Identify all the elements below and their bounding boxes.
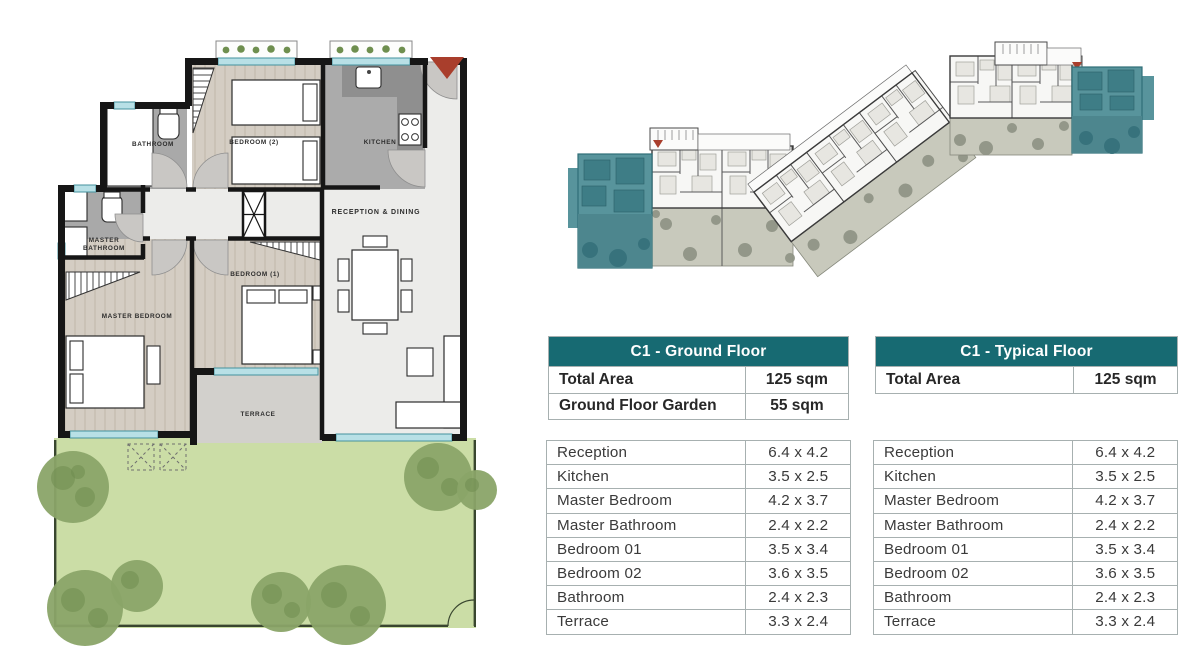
summary-value: 55 sqm [745, 394, 848, 420]
room-dimensions: 3.6 x 3.5 [745, 562, 850, 585]
room-label-master-bath-1: MASTER [89, 237, 120, 244]
floor-plan: BATHROOM BEDROOM (2) KITCHEN RECEPTION &… [0, 0, 540, 656]
room-name: Bedroom 01 [547, 538, 745, 561]
room-dimensions: 2.4 x 2.3 [745, 586, 850, 609]
terrace [195, 372, 322, 443]
room-dimensions: 6.4 x 4.2 [745, 441, 850, 464]
table-typical-floor-rooms: Reception6.4 x 4.2 Kitchen3.5 x 2.5 Mast… [873, 440, 1178, 635]
table-title-ground: C1 - Ground Floor [549, 337, 848, 366]
room-label-bedroom2: BEDROOM (2) [229, 139, 279, 146]
table-row: Total Area 125 sqm [549, 366, 848, 393]
planters [216, 41, 412, 58]
room-name: Reception [874, 441, 1072, 464]
keyplan-right-block [950, 42, 1154, 155]
stove-icon [399, 114, 421, 145]
room-name: Terrace [547, 610, 745, 633]
room-label-kitchen: KITCHEN [364, 139, 397, 146]
summary-value: 125 sqm [745, 367, 848, 393]
room-name: Terrace [874, 610, 1072, 633]
room-dimensions: 3.6 x 3.5 [1072, 562, 1177, 585]
table-row: Kitchen3.5 x 2.5 [547, 464, 850, 488]
room-dimensions: 2.4 x 2.2 [745, 514, 850, 537]
room-name: Master Bathroom [547, 514, 745, 537]
room-label-master-bath-2: BATHROOM [83, 245, 125, 252]
room-name: Reception [547, 441, 745, 464]
room-name: Kitchen [547, 465, 745, 488]
table-typical-floor-summary: C1 - Typical Floor Total Area 125 sqm [875, 336, 1178, 394]
room-dimensions: 3.5 x 2.5 [745, 465, 850, 488]
summary-label: Total Area [549, 367, 745, 393]
key-plan [560, 28, 1196, 278]
table-row: Total Area 125 sqm [876, 366, 1177, 393]
highlighted-unit-right [1072, 67, 1154, 154]
table-row: Master Bathroom2.4 x 2.2 [874, 513, 1177, 537]
room-name: Master Bathroom [874, 514, 1072, 537]
table-row: Terrace3.3 x 2.4 [874, 609, 1177, 633]
room-name: Master Bedroom [874, 489, 1072, 512]
page: { "colors": { "header_teal": "#176a72", … [0, 0, 1196, 656]
room-name: Bathroom [547, 586, 745, 609]
room-dimensions: 4.2 x 3.7 [745, 489, 850, 512]
table-row: Ground Floor Garden 55 sqm [549, 393, 848, 420]
table-row: Reception6.4 x 4.2 [547, 441, 850, 464]
table-row: Master Bathroom2.4 x 2.2 [547, 513, 850, 537]
table-row: Reception6.4 x 4.2 [874, 441, 1177, 464]
table-ground-floor-rooms: Reception6.4 x 4.2 Kitchen3.5 x 2.5 Mast… [546, 440, 851, 635]
summary-value: 125 sqm [1073, 367, 1177, 393]
table-ground-floor-summary: C1 - Ground Floor Total Area 125 sqm Gro… [548, 336, 849, 420]
table-row: Kitchen3.5 x 2.5 [874, 464, 1177, 488]
room-dimensions: 2.4 x 2.3 [1072, 586, 1177, 609]
table-row: Bedroom 023.6 x 3.5 [874, 561, 1177, 585]
room-dimensions: 3.3 x 2.4 [745, 610, 850, 633]
room-label-bathroom: BATHROOM [132, 141, 174, 148]
room-name: Bathroom [874, 586, 1072, 609]
table-row: Bedroom 013.5 x 3.4 [874, 537, 1177, 561]
table-row: Bathroom2.4 x 2.3 [547, 585, 850, 609]
table-row: Terrace3.3 x 2.4 [547, 609, 850, 633]
summary-label: Total Area [876, 367, 1073, 393]
summary-label: Ground Floor Garden [549, 394, 745, 420]
room-label-master-bedroom: MASTER BEDROOM [102, 313, 173, 320]
highlighted-unit-left [568, 154, 652, 268]
room-name: Bedroom 01 [874, 538, 1072, 561]
room-name: Bedroom 02 [547, 562, 745, 585]
room-dimensions: 2.4 x 2.2 [1072, 514, 1177, 537]
table-title-typical: C1 - Typical Floor [876, 337, 1177, 366]
table-row: Bedroom 023.6 x 3.5 [547, 561, 850, 585]
room-dimensions: 3.3 x 2.4 [1072, 610, 1177, 633]
room-dimensions: 6.4 x 4.2 [1072, 441, 1177, 464]
bedroom1-bed [242, 286, 322, 364]
room-label-reception: RECEPTION & DINING [332, 209, 421, 216]
table-row: Bathroom2.4 x 2.3 [874, 585, 1177, 609]
room-dimensions: 3.5 x 2.5 [1072, 465, 1177, 488]
room-name: Bedroom 02 [874, 562, 1072, 585]
room-label-terrace: TERRACE [240, 411, 275, 418]
room-name: Master Bedroom [547, 489, 745, 512]
room-dimensions: 3.5 x 3.4 [1072, 538, 1177, 561]
room-label-bedroom1: BEDROOM (1) [230, 271, 280, 278]
shaft [243, 191, 265, 238]
room-dimensions: 4.2 x 3.7 [1072, 489, 1177, 512]
room-dimensions: 3.5 x 3.4 [745, 538, 850, 561]
table-row: Bedroom 013.5 x 3.4 [547, 537, 850, 561]
table-row: Master Bedroom4.2 x 3.7 [547, 488, 850, 512]
room-name: Kitchen [874, 465, 1072, 488]
table-row: Master Bedroom4.2 x 3.7 [874, 488, 1177, 512]
